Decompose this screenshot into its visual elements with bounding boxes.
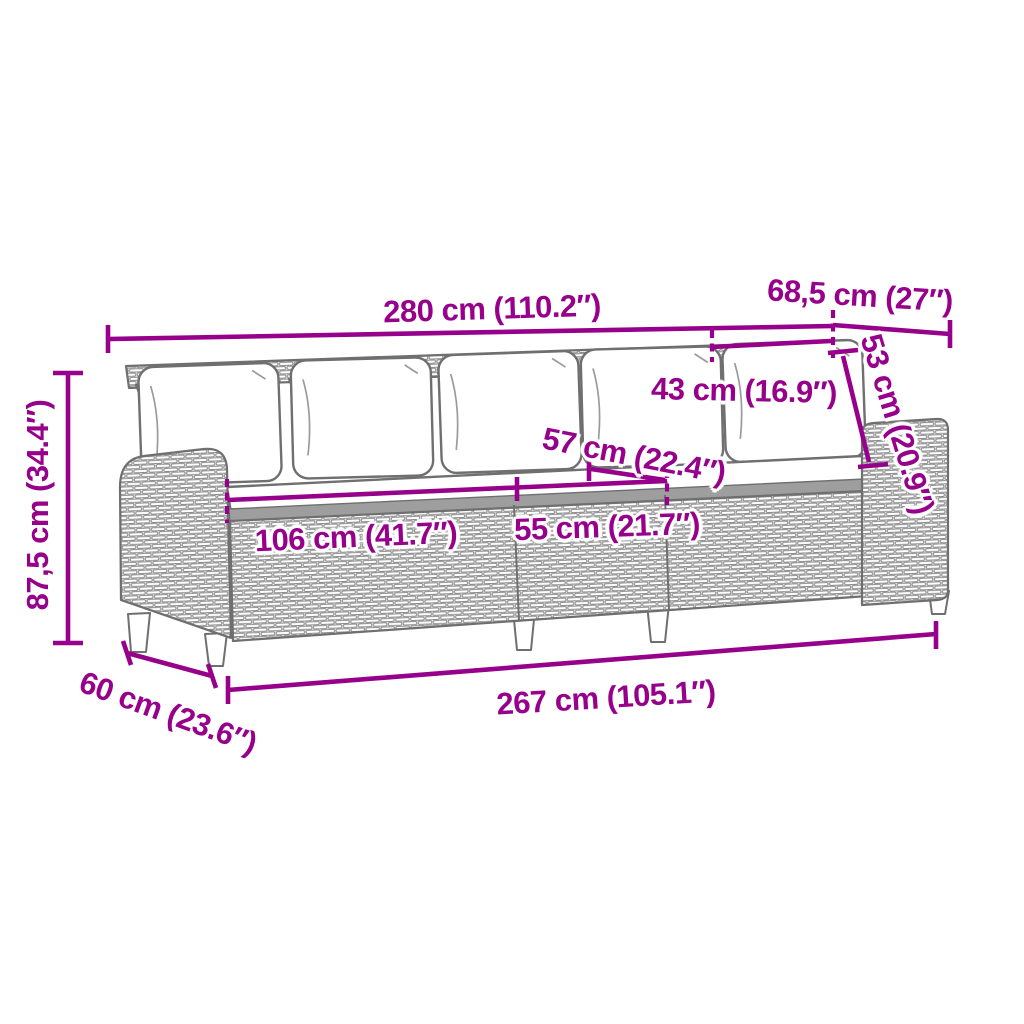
dim-label-back-width: 280 cm (110.2″) bbox=[383, 288, 602, 331]
dimension-diagram-canvas: 280 cm (110.2″) 68,5 cm (27″) 53 cm (20.… bbox=[0, 0, 1024, 1024]
back-cushion bbox=[290, 357, 433, 479]
dim-label-total-height: 87,5 cm (34.4″) bbox=[20, 400, 56, 611]
sofa-line-art bbox=[0, 0, 1024, 1024]
dim-line-total-height bbox=[53, 373, 83, 643]
dim-label-back-cushion-width: 43 cm (16.9″) bbox=[651, 371, 838, 411]
left-armrest bbox=[120, 449, 231, 638]
dim-label-seat-width-single: 55 cm (21.7″) bbox=[514, 506, 701, 548]
